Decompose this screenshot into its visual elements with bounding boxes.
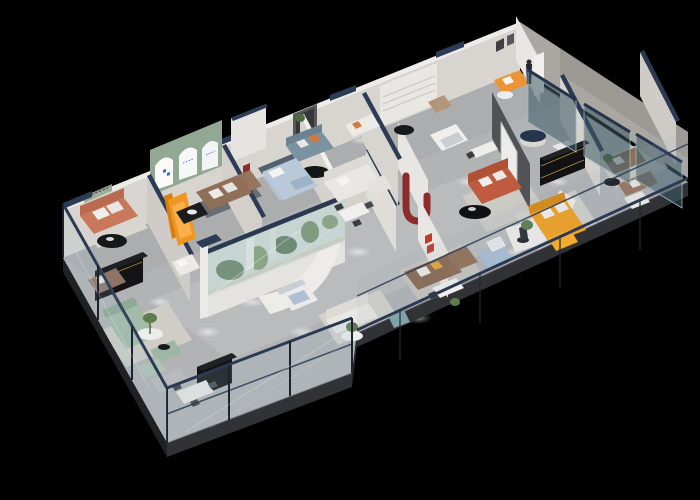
potted-plant [295,114,305,122]
spotlight-pool [148,297,172,307]
navy-round-table [520,130,546,142]
terrarium-end-post [200,243,208,319]
white-round-table [497,91,513,99]
person-head [527,60,532,65]
showroom-floorplan-render: 3D isometric cutaway render of a furnitu… [0,0,700,500]
table-decor [187,210,197,215]
table-decor [106,237,114,241]
scene-layers [63,16,688,457]
render-canvas: 3D isometric cutaway render of a furnitu… [0,0,700,500]
table-decor [468,207,476,211]
spotlight-pool [195,326,221,338]
potted-plant [450,298,460,306]
spotlight-pool [344,246,372,258]
black-side-table [158,344,170,350]
black-coffee-table [394,125,414,135]
vase-flowers [143,313,157,323]
black-coffee-table [97,234,127,248]
black-coffee-table [459,205,491,219]
